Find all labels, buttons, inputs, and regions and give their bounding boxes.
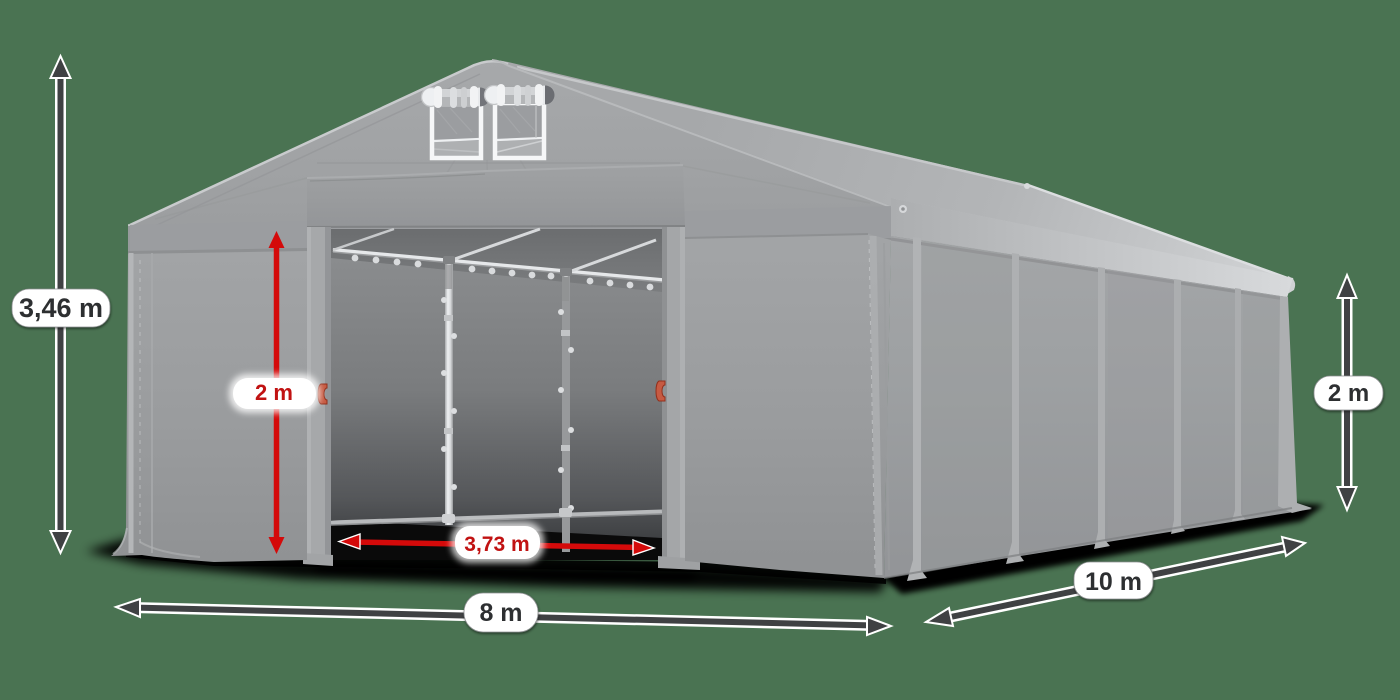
svg-text:2 m: 2 m [1328,380,1369,407]
svg-text:8 m: 8 m [479,599,522,627]
svg-text:2 m: 2 m [255,380,293,405]
svg-text:3,73 m: 3,73 m [464,533,529,556]
svg-text:3,46 m: 3,46 m [19,293,103,323]
svg-text:10 m: 10 m [1085,568,1142,596]
